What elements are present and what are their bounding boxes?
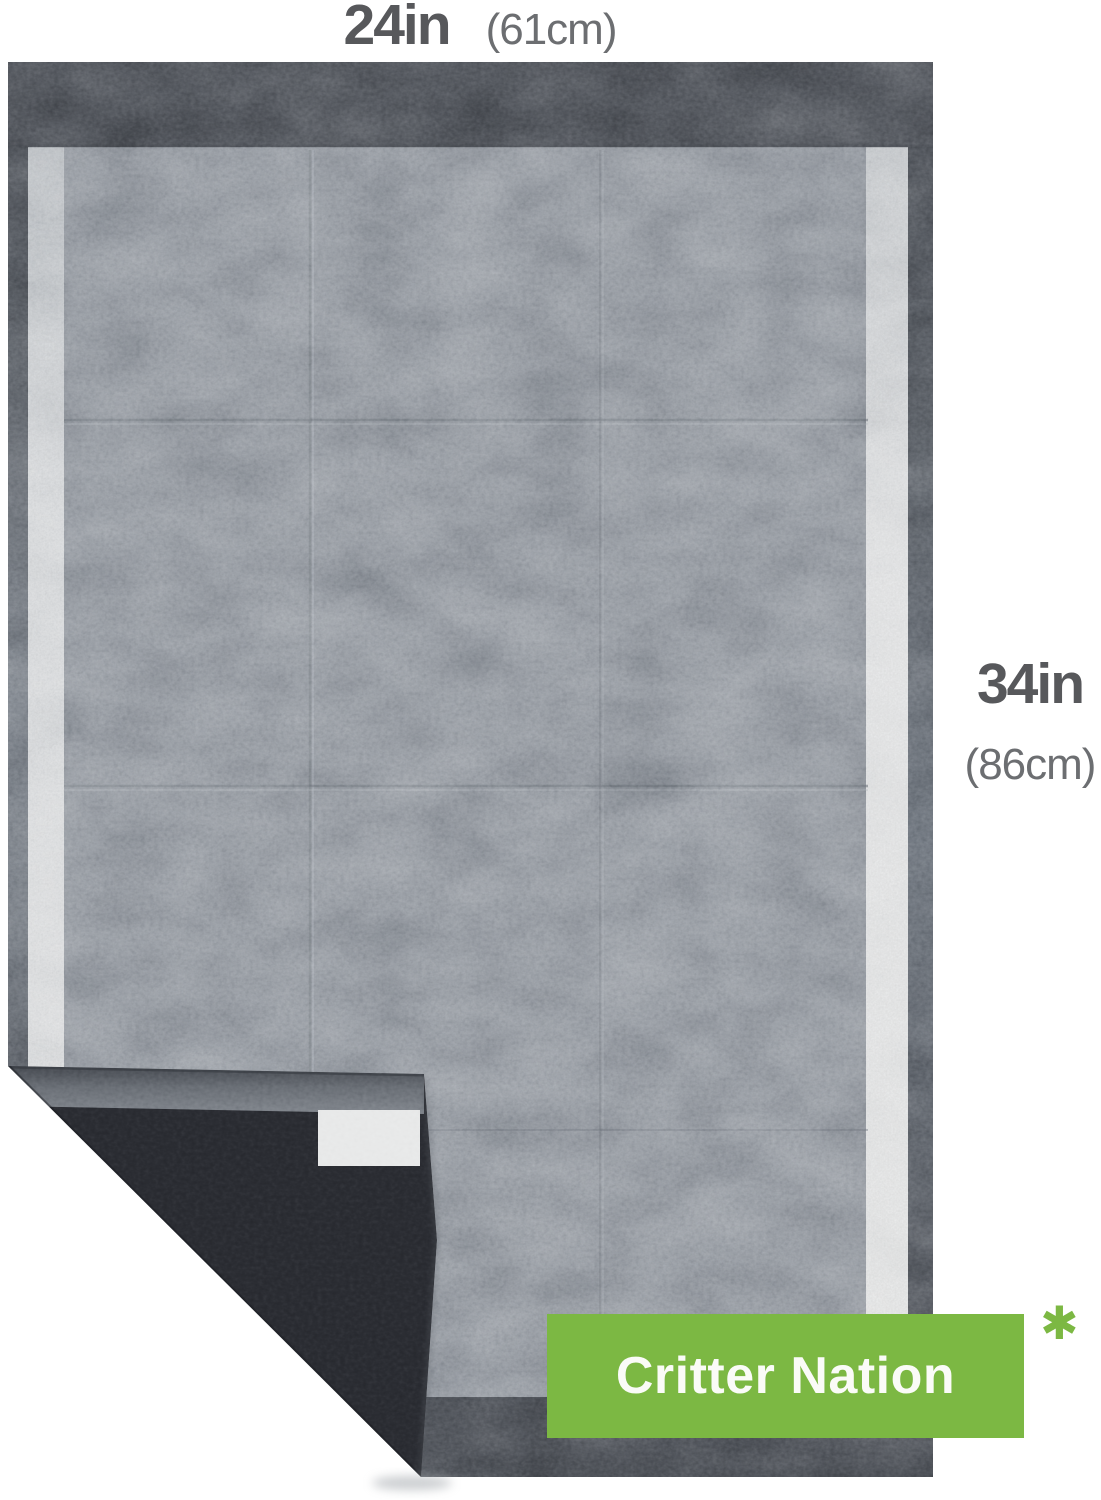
brand-badge-label: Critter Nation xyxy=(616,1350,955,1402)
width-inches-text: 24in xyxy=(344,0,450,54)
width-dimension-label: 24in (61cm) xyxy=(170,0,790,54)
height-metric-text: (86cm) xyxy=(940,743,1101,787)
asterisk-icon: ✱ xyxy=(1040,1300,1079,1346)
pad-shadow xyxy=(372,1476,928,1490)
height-dimension-label: 34in (86cm) xyxy=(940,656,1101,787)
brand-badge: Critter Nation xyxy=(547,1314,1024,1438)
product-image-canvas: 24in (61cm) 34in (86cm) Critter Nation ✱ xyxy=(0,0,1101,1500)
pet-pad-photo xyxy=(0,0,1101,1500)
width-metric-text: (61cm) xyxy=(486,8,617,52)
height-inches-text: 34in xyxy=(977,652,1083,716)
